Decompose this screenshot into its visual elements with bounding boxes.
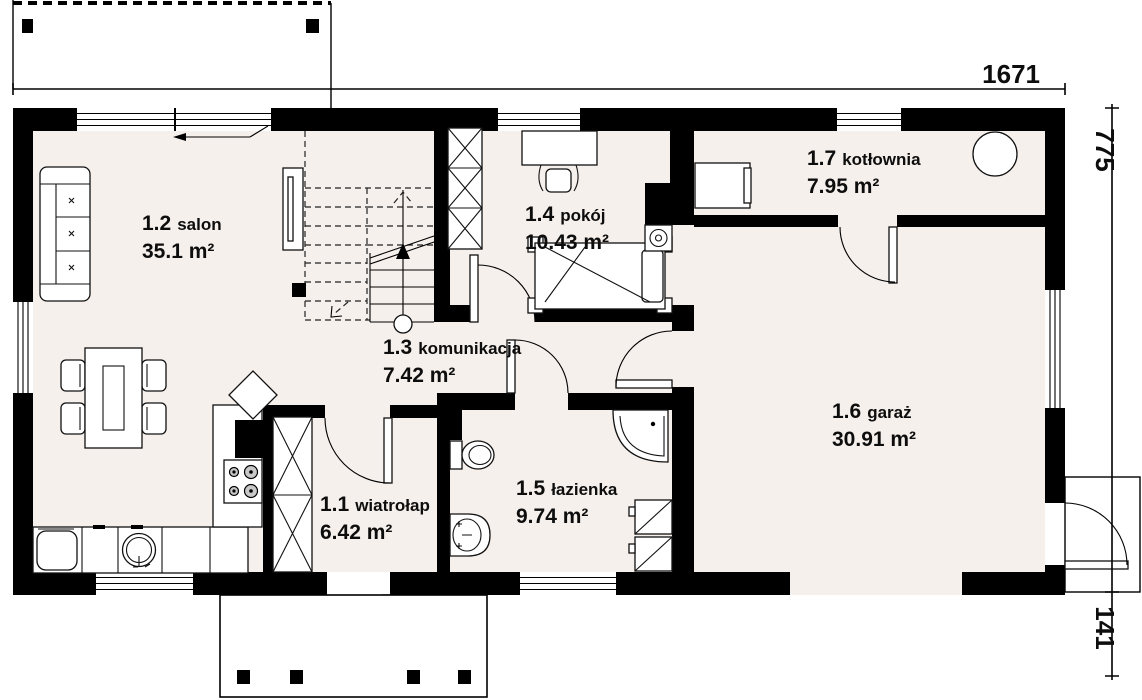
toilet-icon <box>450 441 494 469</box>
window-icon <box>520 572 616 595</box>
porch-post <box>458 670 471 684</box>
room-area-garaz: 30.91 m² <box>832 428 916 451</box>
window-icon <box>13 302 33 393</box>
room-label-pokoj: 1.4pokój <box>525 203 606 226</box>
boiler-icon <box>695 163 751 208</box>
sofa-symbol <box>40 167 90 301</box>
dimension-width: 1671 <box>982 59 1040 89</box>
window-icon <box>96 572 193 595</box>
tank-icon <box>973 132 1017 176</box>
porch-post <box>290 670 303 684</box>
porch <box>220 595 487 697</box>
floor-plan-page: 1.2salon 35.1 m² 1.4pokój 10.43 m² 1.3ko… <box>0 0 1142 700</box>
window-icon <box>176 108 271 131</box>
porch-post <box>237 670 250 684</box>
room-area-lazienka: 9.74 m² <box>516 505 588 528</box>
room-label-wiatrolap: 1.1wiatrołap <box>320 493 430 516</box>
kitchen-sink-cabinet <box>37 531 77 570</box>
entrance-opening <box>327 572 390 595</box>
dimension-height: 775 <box>1090 128 1120 171</box>
stove-icon <box>224 460 262 503</box>
room-area-kotlownia: 7.95 m² <box>807 175 879 198</box>
room-label-lazienka: 1.5łazienka <box>516 477 618 500</box>
floor-plan-drawing: 1.2salon 35.1 m² 1.4pokój 10.43 m² 1.3ko… <box>0 0 1142 700</box>
window-icon <box>1045 290 1065 408</box>
room-area-komunikacja: 7.42 m² <box>383 364 455 387</box>
pillow <box>642 250 663 302</box>
washbasin-icon <box>450 514 490 556</box>
wardrobe-symbol <box>273 417 312 572</box>
terrace-outline <box>13 0 331 108</box>
chair-symbol <box>546 169 571 192</box>
window-icon <box>837 108 901 131</box>
room-label-salon: 1.2salon <box>142 212 222 235</box>
flue-icon <box>645 225 672 251</box>
porch-post <box>407 670 420 684</box>
room-area-salon: 35.1 m² <box>142 240 214 263</box>
dimension-side-entry: 141 <box>1090 606 1120 649</box>
room-label-garaz: 1.6garaż <box>832 400 912 423</box>
wardrobe-symbol <box>448 128 482 249</box>
terrace-post <box>306 19 319 33</box>
radiator-icon <box>283 168 303 250</box>
room-area-wiatrolap: 6.42 m² <box>320 521 392 544</box>
window-icon <box>77 108 174 131</box>
room-area-pokoj: 10.43 m² <box>525 231 609 254</box>
room-label-kotlownia: 1.7kotłownia <box>807 147 921 170</box>
terrace-post <box>22 19 33 33</box>
garage-gate-opening <box>790 572 962 595</box>
window-icon <box>498 108 580 131</box>
garage-side-door-opening <box>1045 503 1065 565</box>
room-label-komunikacja: 1.3komunikacja <box>383 336 522 359</box>
door-icon <box>1065 477 1140 592</box>
chimney <box>645 183 694 225</box>
